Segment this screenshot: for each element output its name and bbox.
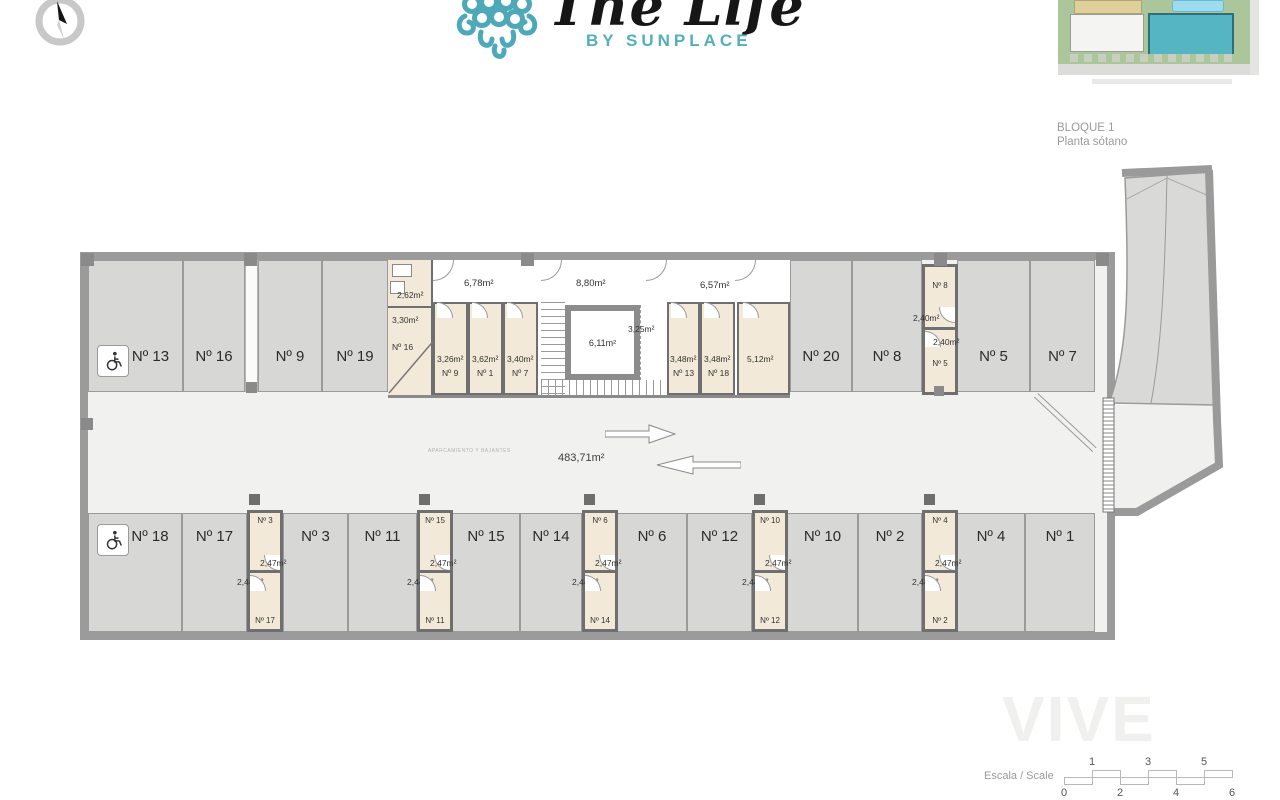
elevator-area-label: 6,11m² [589, 338, 616, 348]
storage-divider-wall [420, 570, 450, 573]
siteplan-parking-strip [1070, 54, 1234, 62]
scale-segment [1204, 770, 1233, 778]
caption-block: BLOQUE 1 [1057, 121, 1127, 135]
stall-label: Nº 7 [1031, 348, 1094, 365]
storage-area-label: 2,47m² [595, 558, 621, 568]
door-arc [939, 307, 955, 323]
stall-label: Nº 14 [521, 528, 581, 545]
total-area-label: 483,71m² [558, 452, 604, 464]
parking-stall: Nº 19 [322, 260, 388, 392]
wall-gap [245, 260, 258, 392]
door-arc [437, 302, 453, 318]
door-arc [507, 302, 523, 318]
parking-stall: Nº 9 [258, 260, 322, 392]
parking-stall: Nº 15 [452, 513, 520, 632]
parking-stall: Nº 20 [790, 260, 852, 392]
siteplan-thumbnail [1052, 0, 1262, 92]
room-unit-label: Nº 13 [673, 368, 694, 378]
storage-unit-label: Nº 11 [420, 616, 450, 625]
parking-stall: Nº 3 [283, 513, 348, 632]
parking-stall: Nº 14 [520, 513, 582, 632]
storage-unit-label: Nº 15 [420, 516, 450, 525]
corridor-area-label: 8,80m² [576, 278, 606, 289]
watermark: VIVE [1002, 682, 1156, 756]
room-unit-label: Nº 9 [442, 368, 458, 378]
stall-label: Nº 18 [119, 528, 181, 545]
stall-label: Nº 4 [958, 528, 1024, 545]
scale-segment [1148, 770, 1177, 778]
storage-area-label: 2,47m² [935, 558, 961, 568]
door-arc [925, 575, 941, 591]
storage-unit-label: Nº 8 [925, 281, 955, 290]
storage-column: Nº 15 2,47m² 2,44m² Nº 11 [417, 510, 453, 632]
entry-ramp [1095, 160, 1230, 545]
storage-divider-wall [925, 327, 955, 330]
storage-divider-wall [250, 570, 280, 573]
door-arc [420, 575, 436, 591]
parking-stall: Nº 2 [858, 513, 922, 632]
storage-unit-label: Nº 2 [925, 616, 955, 625]
scale-segment [1092, 770, 1121, 778]
door-arc [541, 260, 562, 281]
storage-unit-label: Nº 6 [585, 516, 615, 525]
stall-label: Nº 1 [1026, 528, 1094, 545]
stall-label: Nº 3 [284, 528, 347, 545]
scale-segment [1064, 777, 1093, 785]
caption-floor: Planta sótano [1057, 135, 1127, 149]
door-arc [250, 575, 266, 591]
parking-stall: Nº 7 [1030, 260, 1095, 392]
scale-tick: 6 [1225, 787, 1239, 799]
driveway-note: APARCAMIENTO Y BAJANTES [428, 448, 511, 454]
storage-column: Nº 10 2,47m² 2,44m² Nº 12 [752, 510, 788, 632]
door-arc [735, 260, 756, 281]
siteplan-road [1058, 64, 1250, 75]
stall-label: Nº 20 [791, 348, 851, 365]
siteplan-pool [1172, 0, 1224, 12]
storage-area-label: 2,40m² [913, 313, 939, 323]
wall-pillar [81, 418, 93, 430]
storage-column: Nº 8 2,40m² 2,40m² Nº 5 [922, 264, 958, 395]
scale-bar: 1 3 5 0 2 4 6 [1064, 756, 1240, 790]
siteplan-building-left-roof [1074, 0, 1142, 14]
room-unit-label: Nº 7 [512, 368, 528, 378]
storage-unit-label: Nº 5 [925, 359, 955, 368]
column [249, 494, 260, 505]
room-area-label: 5,12m² [747, 354, 773, 364]
parking-stall: Nº 11 [348, 513, 417, 632]
stall-label: Nº 12 [688, 528, 751, 545]
storage-column: Nº 6 2,47m² 2,44m² Nº 14 [582, 510, 618, 632]
door-arc [472, 302, 488, 318]
storage-column: Nº 4 2,47m² 2,44m² Nº 2 [922, 510, 958, 632]
stall-label: Nº 13 [119, 348, 182, 365]
stall-label: Nº 6 [618, 528, 686, 545]
stall-label: Nº 9 [259, 348, 321, 365]
storage-area-label: 2,40m² [933, 337, 959, 347]
siteplan-road-right [1250, 0, 1259, 75]
door-arc [671, 302, 687, 318]
stairs [541, 380, 665, 395]
wall-pillar [81, 253, 94, 266]
landing-area-label: 3,25m² [628, 324, 654, 334]
scale-label: Escala / Scale [984, 770, 1054, 782]
stall-label: Nº 19 [323, 348, 387, 365]
parking-stall: Nº 8 [852, 260, 922, 392]
storage-divider-wall [585, 570, 615, 573]
stall-label: Nº 17 [183, 528, 246, 545]
scale-tick: 4 [1169, 787, 1183, 799]
storage-unit-label: Nº 4 [925, 516, 955, 525]
parking-stall: Nº 16 [183, 260, 245, 392]
parking-stall: Nº 5 [957, 260, 1030, 392]
logo-subtitle: BY SUNPLACE [586, 31, 752, 51]
siteplan-building-left [1070, 14, 1144, 52]
arrow-left-icon [653, 453, 741, 477]
stall-label: Nº 8 [853, 348, 921, 365]
elevator-shaft: 6,11m² [565, 305, 640, 380]
parking-stall: Nº 4 [957, 513, 1025, 632]
storeroom: 3,26m² Nº 9 [433, 302, 468, 395]
column [754, 494, 765, 505]
wall-pillar [521, 253, 534, 266]
storeroom: 3,48m² Nº 13 [667, 302, 700, 395]
wall-pillar [246, 382, 257, 393]
sink-fixture [392, 264, 412, 277]
storeroom: 3,62m² Nº 1 [468, 302, 503, 395]
column [924, 494, 935, 505]
storage-unit-label: Nº 3 [250, 516, 280, 525]
siteplan-road-bottom-strip [1092, 79, 1232, 84]
corridor-area-label: 6,78m² [464, 278, 494, 289]
room-unit-label: Nº 18 [708, 368, 729, 378]
room-area-label: 2,62m² [397, 290, 423, 300]
room-area-label: 3,26m² [437, 354, 463, 364]
storeroom: 3,40m² Nº 7 [503, 302, 538, 395]
room-area-label: 3,40m² [507, 354, 533, 364]
room-area-label: 3,48m² [704, 354, 730, 364]
corner-chamfer-wall [1034, 393, 1097, 452]
storage-column: Nº 3 2,47m² 2,44m² Nº 17 [247, 510, 283, 632]
scale-tick: 0 [1057, 787, 1071, 799]
stall-label: Nº 10 [788, 528, 857, 545]
parking-stall: Nº 10 [787, 513, 858, 632]
scale-tick: 2 [1113, 787, 1127, 799]
storage-area-label: 2,47m² [260, 558, 286, 568]
logo-mark-grapes-icon [455, 0, 539, 62]
storeroom: 5,12m² [737, 302, 790, 395]
parking-stall: Nº 12 [687, 513, 752, 632]
door-arc [585, 575, 601, 591]
parking-stall: Nº 17 [182, 513, 247, 632]
floorplan-page: The Life BY SUNPLACE BLOQUE 1 Planta sót… [0, 0, 1280, 800]
door-arc [433, 260, 454, 281]
scale-tick: 3 [1141, 756, 1155, 768]
stall-label: Nº 16 [184, 348, 244, 365]
parking-stall: Nº 1 [1025, 513, 1095, 632]
storage-unit-label: Nº 14 [585, 616, 615, 625]
room-area-label: 3,62m² [472, 354, 498, 364]
wall-pillar [244, 253, 257, 266]
compass-icon [30, 0, 90, 54]
storage-divider-wall [925, 570, 955, 573]
storeroom: 3,48m² Nº 18 [700, 302, 735, 395]
column [419, 494, 430, 505]
door-arc [755, 575, 771, 591]
garage-plan: Nº 13 Nº 16 Nº 9 Nº 19 Nº 20 Nº 8 Nº 5 N… [80, 252, 1115, 640]
stall-label: Nº 5 [958, 348, 1029, 365]
storage-unit-label: Nº 12 [755, 616, 785, 625]
door-arc [646, 260, 667, 281]
door-arc [704, 302, 720, 318]
parking-stall: Nº 13 [88, 260, 183, 392]
scale-tick: 1 [1085, 756, 1099, 768]
room-unit-label: Nº 1 [477, 368, 493, 378]
door-arc [743, 302, 759, 318]
stall-label: Nº 2 [859, 528, 921, 545]
room-area-label: 3,48m² [670, 354, 696, 364]
storage-area-label: 2,47m² [430, 558, 456, 568]
column [584, 494, 595, 505]
storage-divider-wall [755, 570, 785, 573]
inner-wall [388, 306, 433, 308]
wall-pillar [934, 253, 947, 266]
siteplan-building-highlighted [1148, 13, 1234, 57]
stall-label: Nº 11 [349, 528, 416, 545]
parking-stall: Nº 18 [88, 513, 182, 632]
parking-stall: Nº 6 [617, 513, 687, 632]
corridor-area-label: 6,57m² [700, 280, 730, 291]
scale-tick: 5 [1197, 756, 1211, 768]
scale-segment [1120, 777, 1149, 785]
storage-unit-label: Nº 10 [755, 516, 785, 525]
core-block: 2,62m² 3,30m² Nº 16 6,78m² 8,80m² 6,57m²… [388, 260, 790, 398]
scale-segment [1176, 777, 1205, 785]
stall-label: Nº 15 [453, 528, 519, 545]
landing-dashed-wall [640, 305, 641, 380]
storage-area-label: 2,47m² [765, 558, 791, 568]
arrow-right-icon [605, 423, 677, 445]
wall-pillar [934, 386, 944, 396]
storage-unit-label: Nº 17 [250, 616, 280, 625]
plan-caption: BLOQUE 1 Planta sótano [1057, 121, 1127, 149]
